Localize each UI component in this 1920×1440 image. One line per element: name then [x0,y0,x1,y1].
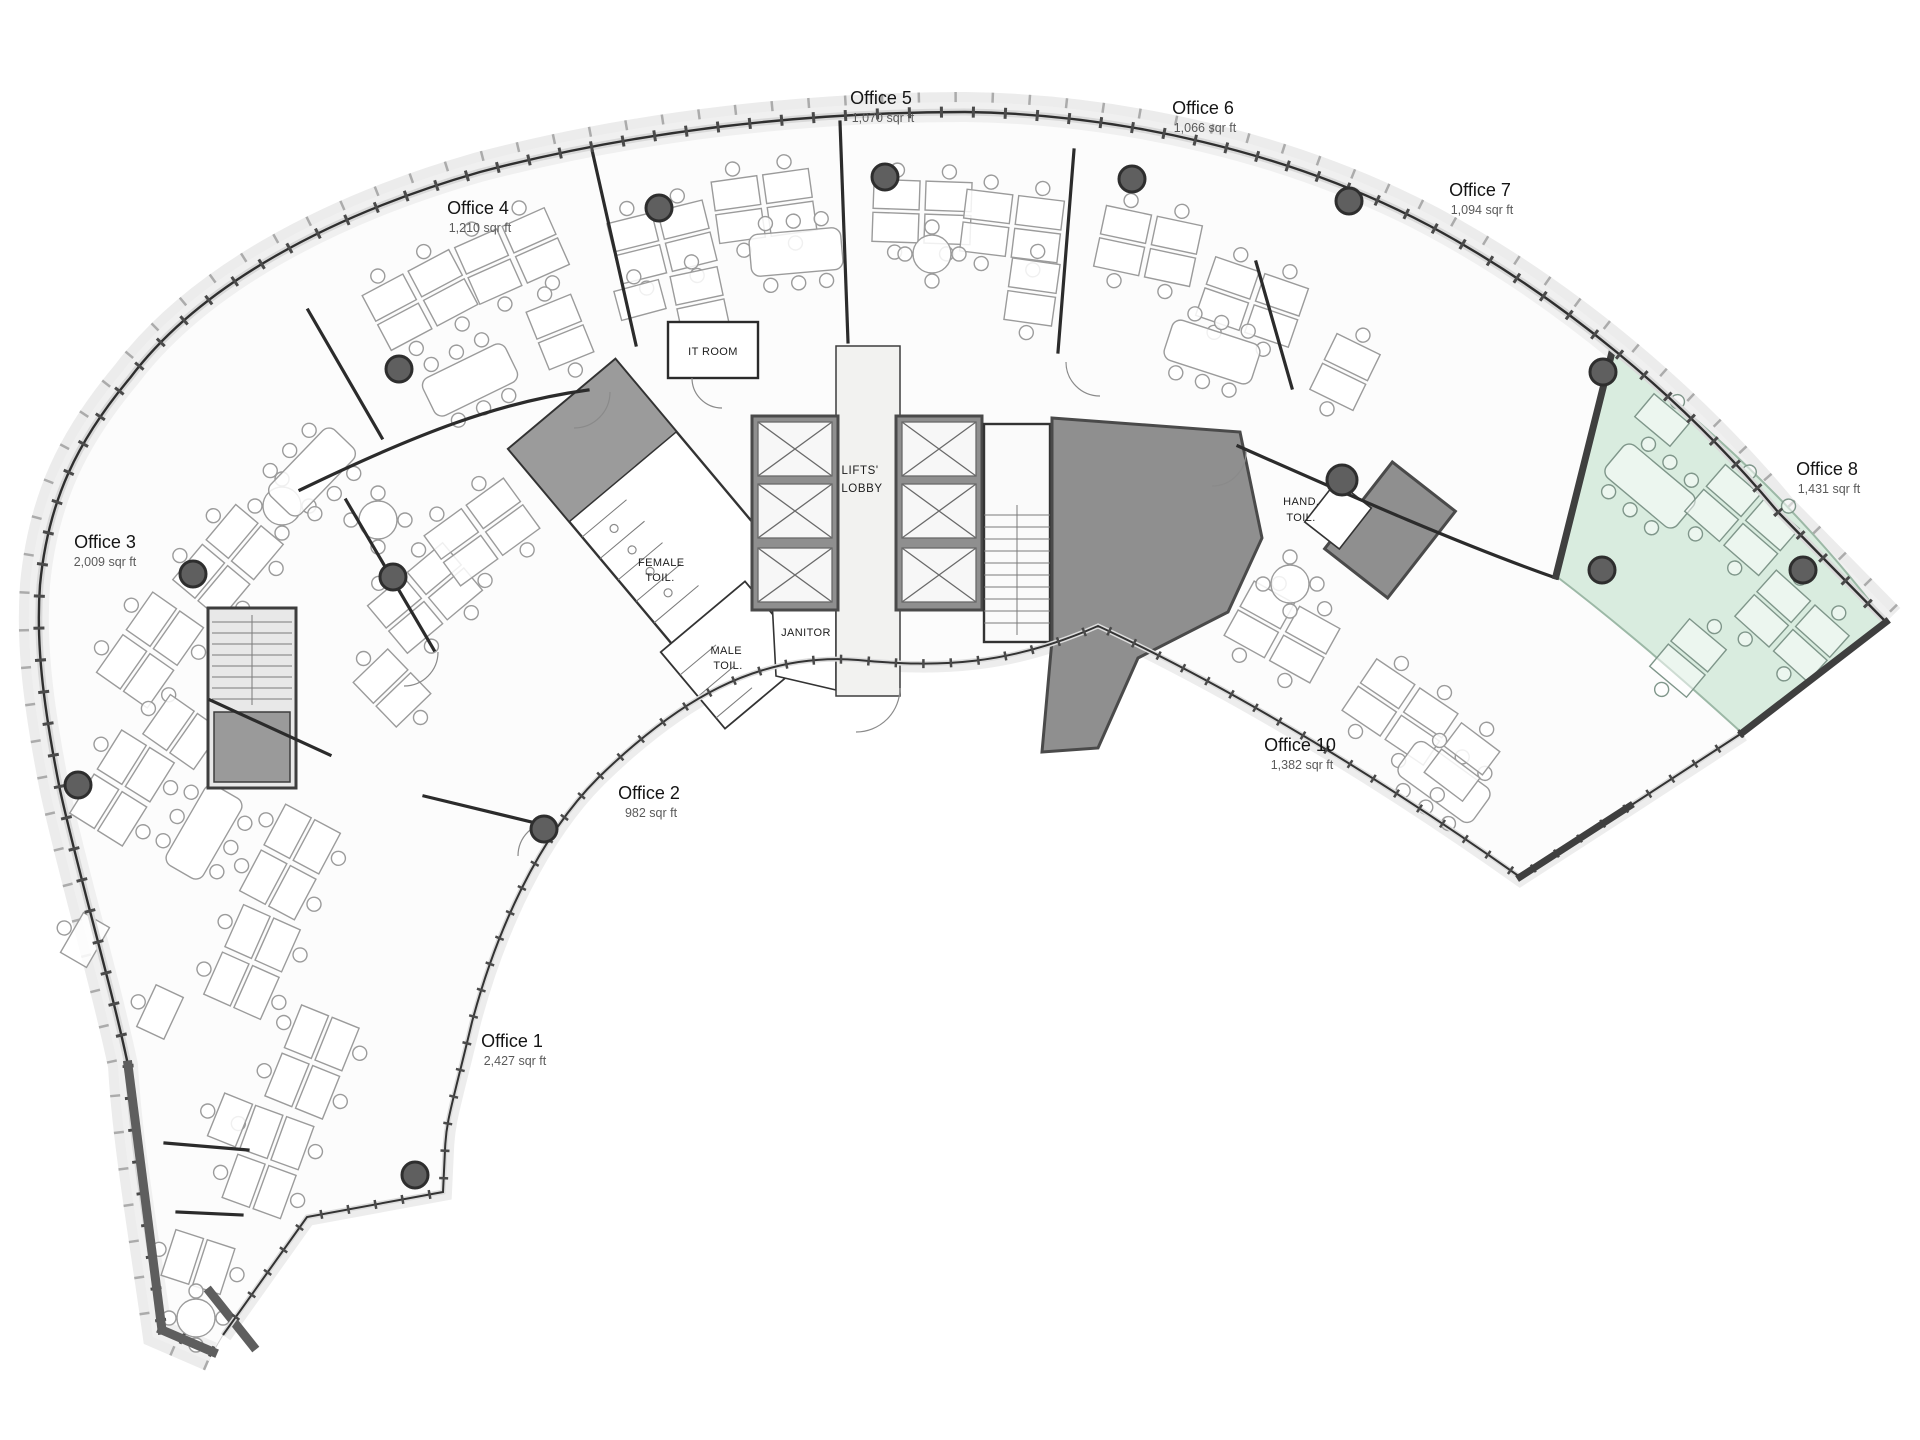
svg-text:982 sqr ft: 982 sqr ft [625,806,678,820]
office-10-label: Office 10 1,382 sqr ft [1264,735,1336,772]
svg-text:1,070 sqr ft: 1,070 sqr ft [852,111,915,125]
office-2-label: Office 2 982 sqr ft [618,783,680,820]
svg-text:2,009 sqr ft: 2,009 sqr ft [74,555,137,569]
it-room-label: IT ROOM [688,346,738,358]
svg-text:Office 1: Office 1 [481,1031,543,1051]
svg-text:1,210 sqr ft: 1,210 sqr ft [449,221,512,235]
core-stair [984,424,1050,642]
svg-text:Office 7: Office 7 [1449,180,1511,200]
svg-text:Office 4: Office 4 [447,198,509,218]
lifts-lobby-area [836,346,900,696]
office-5-label: Office 5 1,070 sqr ft [850,88,915,125]
floor-plan-drawing: Office 1 2,427 sqr ft Office 2 982 sqr f… [0,0,1920,1440]
office-8-label: Office 8 1,431 sqr ft [1796,459,1861,496]
floor-plan-page: Office 1 2,427 sqr ft Office 2 982 sqr f… [0,0,1920,1440]
lift-bank-right [896,416,982,610]
janitor-label: JANITOR [781,627,831,639]
svg-text:Office 8: Office 8 [1796,459,1858,479]
lift-bank-left [752,416,838,610]
svg-text:1,066 sqr ft: 1,066 sqr ft [1174,121,1237,135]
office-3-label: Office 3 2,009 sqr ft [74,532,137,569]
svg-text:Office 6: Office 6 [1172,98,1234,118]
svg-text:Office 5: Office 5 [850,88,912,108]
svg-text:Office 3: Office 3 [74,532,136,552]
office-6-label: Office 6 1,066 sqr ft [1172,98,1237,135]
svg-text:Office 10: Office 10 [1264,735,1336,755]
svg-text:1,431 sqr ft: 1,431 sqr ft [1798,482,1861,496]
office-7-label: Office 7 1,094 sqr ft [1449,180,1514,217]
svg-text:1,382 sqr ft: 1,382 sqr ft [1271,758,1334,772]
svg-text:Office 2: Office 2 [618,783,680,803]
office-1-label: Office 1 2,427 sqr ft [481,1031,547,1068]
office-4-label: Office 4 1,210 sqr ft [447,198,512,235]
svg-text:2,427 sqr ft: 2,427 sqr ft [484,1054,547,1068]
svg-text:1,094 sqr ft: 1,094 sqr ft [1451,203,1514,217]
west-stair-block [208,608,296,788]
